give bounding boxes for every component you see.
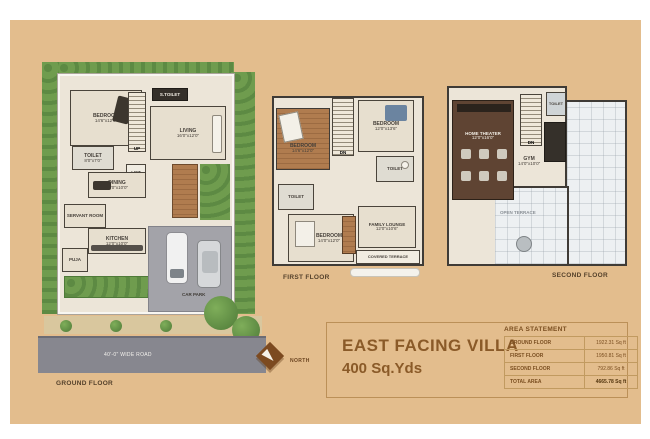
road-label: 40'-0" WIDE ROAD (104, 352, 152, 358)
room-dims: 14'6"x12'0" (292, 149, 314, 154)
shrub-icon (60, 320, 72, 332)
first-toilet-2: TOILET (376, 156, 414, 182)
theater-screen-icon (457, 104, 511, 112)
theater-seat-icon (497, 171, 507, 181)
dining-table-icon (93, 181, 111, 190)
stairs-label: UP (134, 146, 140, 151)
room-dims: 12'0"x13'6" (375, 127, 397, 132)
room-label: COVERED TERRACE (368, 255, 408, 260)
second-gym: GYM 14'0"x10'0" (518, 156, 540, 167)
ground-road: 40'-0" WIDE ROAD (38, 336, 266, 373)
ground-trees-left (42, 62, 59, 314)
bed-icon (295, 221, 315, 247)
ground-puja: PUJA (62, 248, 88, 272)
ground-living: LIVING 16'0"x12'0" (150, 106, 226, 160)
first-wood-closet (342, 216, 356, 254)
row-label: TOTAL AREA (505, 376, 585, 389)
bed-icon (385, 105, 407, 121)
ground-staircase: UP (128, 92, 146, 152)
car-icon-silver (197, 240, 221, 288)
room-dims: 8'0"x7'0" (84, 159, 101, 164)
row-value: 4665.78 Sq ft (585, 376, 638, 389)
room-label: SERVANT ROOM (67, 213, 103, 218)
ground-servant-toilet: S.TOILET (152, 88, 188, 101)
car-windshield (170, 269, 184, 278)
stairs-label: DN (340, 150, 347, 155)
second-home-theater: HOME THEATER 12'0"x16'0" (452, 100, 514, 200)
second-wardrobe (544, 122, 566, 162)
second-open-terrace-right (565, 100, 627, 266)
first-bedroom-2: BEDROOM 12'0"x13'6" (358, 100, 414, 152)
stairs-label: DN (528, 140, 535, 145)
table-row: FIRST FLOOR 1950.81 Sq ft (505, 350, 638, 363)
first-bedroom-1: BEDROOM 14'6"x12'0" (276, 108, 330, 170)
first-toilet-1: TOILET (278, 184, 314, 210)
ground-kitchen: KITCHEN 12'0"x10'0" (88, 228, 146, 254)
room-dims: 14'0"x12'0" (318, 239, 340, 244)
ground-wood-deck (172, 164, 198, 218)
room-dims: 16'0"x12'0" (177, 134, 199, 139)
theater-seat-icon (497, 149, 507, 159)
theater-seat-icon (461, 149, 471, 159)
theater-seat-icon (479, 171, 489, 181)
table-row: TOTAL AREA 4665.78 Sq ft (505, 376, 638, 389)
room-dims: 12'0"x10'6" (376, 227, 398, 232)
first-family-lounge: FAMILY LOUNGE 12'0"x10'6" (358, 206, 416, 248)
theater-seat-icon (461, 171, 471, 181)
first-balcony-ledge (350, 268, 420, 277)
first-floor-caption: FIRST FLOOR (283, 274, 330, 281)
car-roof (202, 251, 218, 273)
sofa-icon (212, 115, 222, 153)
table-row: SECOND FLOOR 792.86 Sq ft (505, 363, 638, 376)
compass-label: NORTH (290, 358, 310, 364)
row-value: 792.86 Sq ft (585, 363, 638, 376)
second-floor-caption: SECOND FLOOR (552, 272, 608, 279)
ground-lawn (64, 276, 150, 298)
theater-seat-icon (479, 149, 489, 159)
room-dims: 12'0"x16'0" (472, 136, 494, 141)
car-park-label: CAR PARK (182, 292, 205, 297)
first-covered-terrace: COVERED TERRACE (356, 250, 420, 264)
ground-hedge-top (58, 62, 234, 74)
villa-title: EAST FACING VILLA (342, 336, 519, 356)
villa-subtitle: 400 Sq.Yds (342, 360, 422, 377)
villa-brochure-page: BEDROOM 14'6"x12'0" TOILET 8'0"x7'0" S.T… (0, 0, 650, 439)
second-toilet: TOILET (546, 92, 566, 116)
compass-arrow (262, 349, 277, 364)
ground-dining: DINING 12'0"x10'0" (88, 172, 146, 198)
room-label: TOILET (288, 194, 304, 199)
room-label: TOILET (549, 102, 563, 107)
open-terrace-label: OPEN TERRACE (500, 210, 536, 215)
bed-icon (278, 111, 303, 143)
table-row: GROUND FLOOR 1922.31 Sq ft (505, 337, 638, 350)
row-label: FIRST FLOOR (505, 350, 585, 363)
room-dims: 14'0"x10'0" (518, 162, 540, 167)
ground-courtyard-green (200, 164, 230, 220)
second-staircase: DN (520, 94, 542, 146)
area-statement-table: GROUND FLOOR 1922.31 Sq ft FIRST FLOOR 1… (504, 336, 638, 389)
ground-toilet: TOILET 8'0"x7'0" (72, 146, 114, 170)
row-value: 1950.81 Sq ft (585, 350, 638, 363)
car-icon-white (166, 232, 188, 284)
washbasin-icon (401, 161, 409, 169)
shrub-icon (110, 320, 122, 332)
room-label: PUJA (69, 257, 81, 262)
ground-trees-right (231, 72, 255, 314)
first-staircase: DN (332, 98, 354, 156)
ground-servant-room: SERVANT ROOM (64, 204, 106, 228)
shrub-icon (160, 320, 172, 332)
ground-floor-caption: GROUND FLOOR (56, 380, 113, 387)
room-label: S.TOILET (160, 92, 180, 97)
row-label: SECOND FLOOR (505, 363, 585, 376)
room-label: TOILET (387, 166, 403, 171)
planter-icon (516, 236, 532, 252)
row-label: GROUND FLOOR (505, 337, 585, 350)
area-statement-heading: AREA STATEMENT (504, 326, 567, 333)
kitchen-counter-icon (91, 245, 143, 251)
row-value: 1922.31 Sq ft (585, 337, 638, 350)
